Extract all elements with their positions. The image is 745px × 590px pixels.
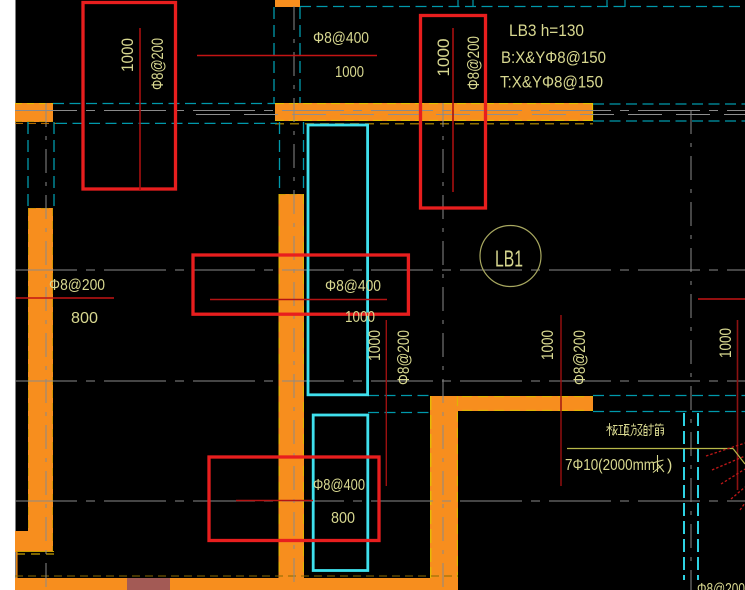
svg-text:Φ8@400: Φ8@400 xyxy=(313,477,365,494)
svg-text:Φ8@400: Φ8@400 xyxy=(325,278,381,295)
svg-text:T:X&YΦ8@150: T:X&YΦ8@150 xyxy=(500,73,603,92)
svg-text:): ) xyxy=(667,457,672,474)
svg-text:7Φ10(2000mm: 7Φ10(2000mm xyxy=(565,457,655,474)
svg-text:Φ8@200: Φ8@200 xyxy=(464,36,483,90)
svg-text:Φ8@200: Φ8@200 xyxy=(148,38,167,90)
svg-text:B:X&YΦ8@150: B:X&YΦ8@150 xyxy=(501,48,606,67)
svg-text:1000: 1000 xyxy=(716,328,735,358)
svg-text:Φ8@200: Φ8@200 xyxy=(394,330,413,385)
svg-text:1000: 1000 xyxy=(538,330,557,360)
svg-text:800: 800 xyxy=(71,310,98,327)
svg-text:Φ8@200: Φ8@200 xyxy=(570,330,589,385)
svg-text:1000: 1000 xyxy=(335,64,364,81)
svg-text:1000: 1000 xyxy=(345,309,375,326)
svg-text:Φ8@200: Φ8@200 xyxy=(697,581,745,590)
svg-text:1000: 1000 xyxy=(365,330,384,361)
svg-text:LB1: LB1 xyxy=(495,246,523,272)
svg-text:1000: 1000 xyxy=(118,38,137,72)
svg-text:LB3 h=130: LB3 h=130 xyxy=(509,21,584,40)
svg-text:Φ8@200: Φ8@200 xyxy=(49,277,105,294)
svg-text:Φ8@400: Φ8@400 xyxy=(313,30,369,47)
svg-text:800: 800 xyxy=(331,510,355,527)
svg-text:1000: 1000 xyxy=(434,39,453,77)
